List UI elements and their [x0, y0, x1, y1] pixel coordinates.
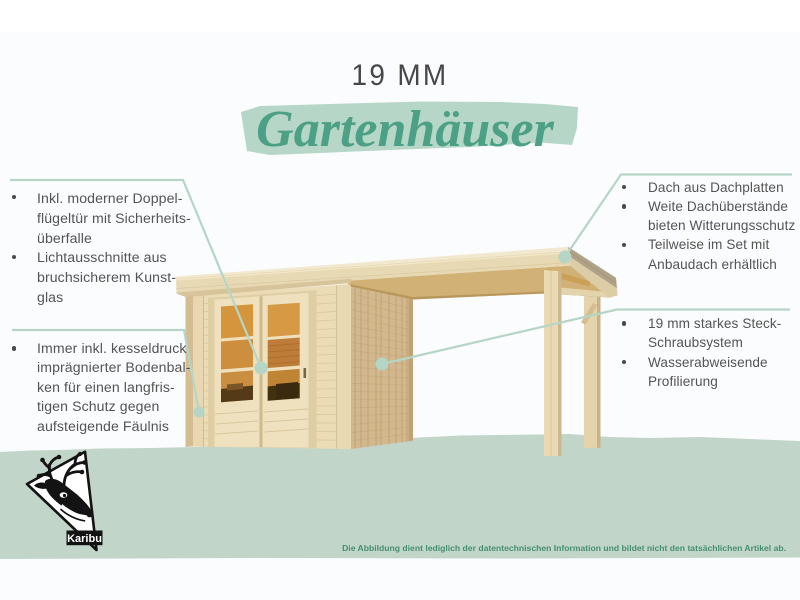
svg-text:Karibu: Karibu: [67, 533, 102, 545]
svg-text:Die Abbildung dient lediglich: Die Abbildung dient lediglich der datent…: [342, 543, 786, 553]
